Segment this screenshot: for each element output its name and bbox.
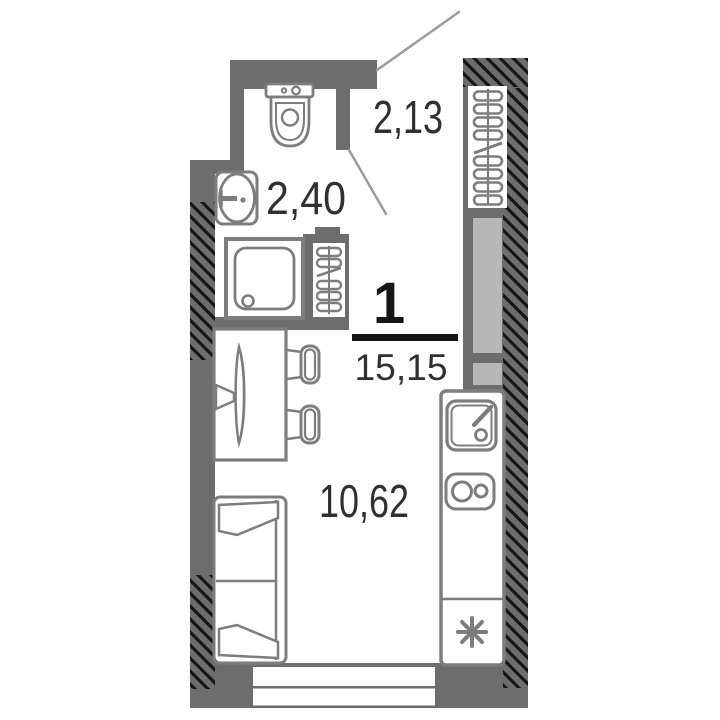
- towel-radiator-icon: [313, 243, 345, 317]
- sofa-icon: [214, 497, 286, 663]
- floor-plan: 2,13 2,40 10,62 1 15,15: [0, 0, 720, 720]
- bathroom-door-line: [349, 150, 386, 214]
- toilet-icon: [266, 84, 313, 146]
- shower-icon: [226, 239, 303, 318]
- radiator-icon: [468, 86, 507, 208]
- chair-icon: [287, 346, 319, 383]
- rooms-count-label: 1: [373, 271, 405, 336]
- hallway-area-label: 2,13: [373, 91, 443, 143]
- floor-plan-canvas: 2,13 2,40 10,62 1 15,15: [0, 0, 720, 720]
- chair-icon: [287, 406, 319, 443]
- callout-leader-line: [377, 12, 459, 70]
- total-area-label: 15,15: [355, 347, 448, 388]
- bathroom-sink-icon: [216, 172, 257, 224]
- asterisk-marker: [458, 618, 486, 646]
- living-area-label: 10,62: [319, 475, 409, 527]
- total-area-divider: [352, 334, 458, 341]
- bathroom-area-label: 2,40: [266, 172, 346, 224]
